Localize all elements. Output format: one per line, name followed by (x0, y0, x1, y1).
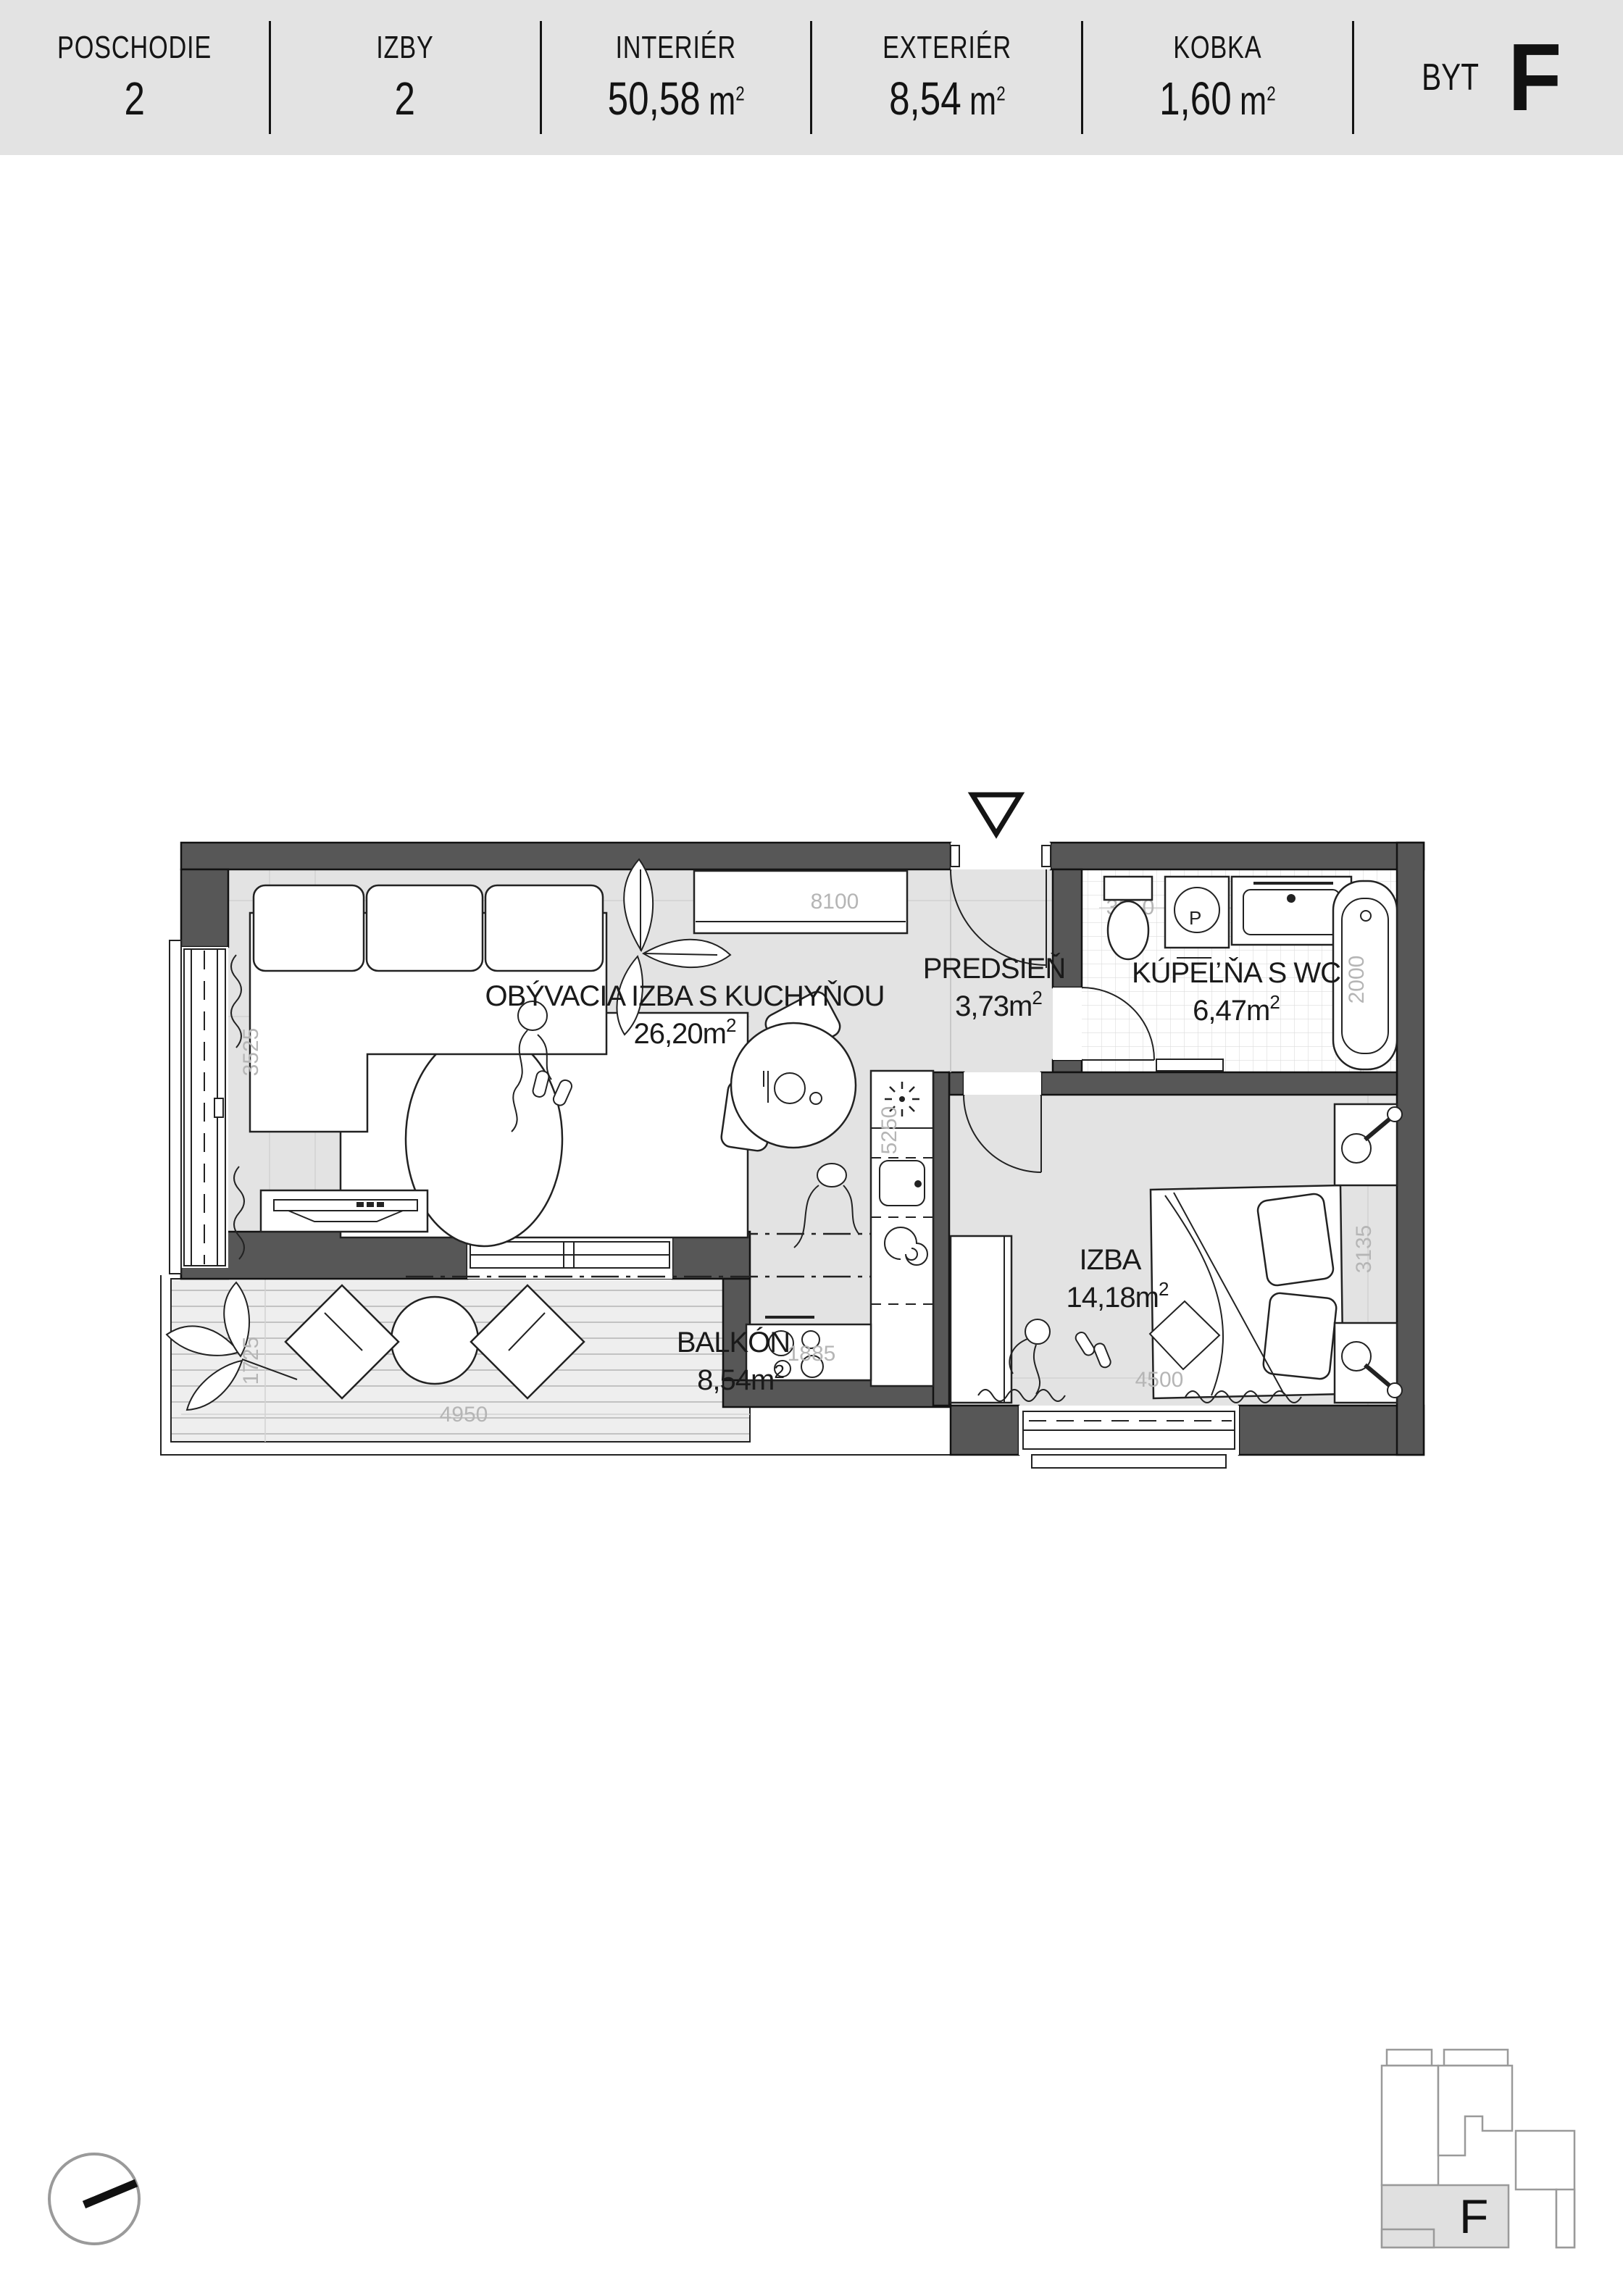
rug-ellipse (406, 1032, 562, 1246)
sideboard (694, 871, 907, 933)
wall-segment (933, 1072, 949, 1406)
dimension-label: 2000 (1345, 956, 1369, 1004)
wall-segment (181, 843, 951, 869)
living-room-area: 26,20m2 (634, 1014, 736, 1050)
bath-threshold (1156, 1059, 1223, 1071)
wall-segment (949, 1072, 964, 1095)
bed (1150, 1185, 1343, 1398)
wall-segment (1397, 843, 1424, 1455)
balcony-area: 8,54m2 (697, 1361, 784, 1396)
washing-machine: P (1165, 877, 1229, 958)
bathroom-label: KÚPEĽŇA S WC (1132, 956, 1340, 989)
pillow (1262, 1292, 1337, 1379)
wall-segment (951, 1406, 1019, 1455)
dimension-label: 5250 (877, 1106, 901, 1155)
building-keyplan: F (1382, 2050, 1574, 2247)
dimension-label: 1885 (788, 1342, 836, 1366)
dimension-label: 3135 (1352, 1225, 1376, 1274)
bedroom-area: 14,18m2 (1067, 1278, 1169, 1314)
wardrobe (951, 1236, 1011, 1403)
balcony-label: BALKÓN (677, 1326, 790, 1358)
dimension-label: 4950 (440, 1403, 488, 1427)
bedroom-label: IZBA (1080, 1244, 1142, 1276)
living-room-label: OBÝVACIA IZBA S KUCHYŇOU (485, 980, 885, 1012)
wall-segment (181, 869, 228, 947)
wall-segment (1041, 1072, 1397, 1095)
floorplan-page: POSCHODIE 2 IZBY 2 INTERIÉR 50,58 m2 EXT… (0, 0, 1623, 2296)
bathroom-area: 6,47m2 (1193, 991, 1280, 1027)
wall-segment (1051, 843, 1424, 869)
hall-area: 3,73m2 (955, 987, 1042, 1022)
wall-segment (1053, 1060, 1082, 1072)
dimension-label: 3525 (239, 1028, 263, 1077)
hall-label: PREDSIEŇ (923, 952, 1066, 985)
keyplan-letter: F (1459, 2189, 1488, 2243)
dimension-label: 4500 (1135, 1368, 1184, 1392)
living-window (170, 940, 228, 1274)
toilet (1104, 877, 1152, 959)
compass-icon (49, 2154, 139, 2244)
wall-segment (672, 1232, 750, 1279)
tv-cabinet (261, 1190, 427, 1232)
pillow (1256, 1193, 1335, 1287)
svg-text:P: P (1189, 907, 1201, 929)
entrance-arrow-icon (972, 795, 1020, 834)
balcony-table (391, 1297, 478, 1384)
floor-plan: 3250 (0, 0, 1623, 2296)
dimension-label: 1725 (239, 1337, 263, 1385)
dimension-label: 8100 (811, 890, 859, 914)
bedroom-window (1019, 1406, 1239, 1468)
